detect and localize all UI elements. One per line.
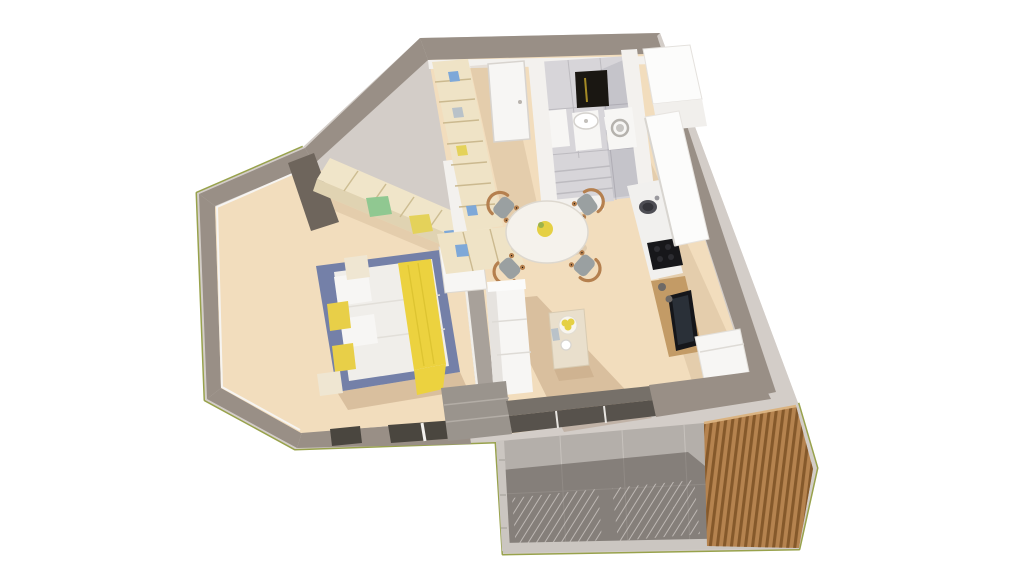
sink-basin [643, 203, 654, 211]
cup [561, 340, 571, 350]
fruit-leaf [538, 222, 544, 228]
screen-slats [704, 406, 813, 548]
faucet [655, 196, 660, 201]
bathroom-mirror [575, 70, 609, 108]
basin-drain [584, 119, 588, 123]
step-platform [441, 381, 512, 441]
entry-door [488, 61, 530, 142]
shelf-item-blue-2 [466, 205, 478, 216]
railing-shadow-hatch-1 [512, 489, 602, 549]
pillow-yellow-1 [327, 301, 351, 331]
washer-drum [616, 124, 624, 132]
apartment-3d-floorplan [0, 0, 1024, 576]
speaker-2 [666, 296, 673, 303]
wardrobe-item-tan-towel [409, 214, 433, 234]
shelf-item-blue [448, 71, 460, 82]
shelf-item-tan [456, 145, 468, 156]
nightstand-top [344, 255, 370, 280]
speaker-1 [658, 283, 666, 291]
wardrobe-item-green-towel [366, 196, 392, 217]
bedroom-window-small [330, 426, 362, 446]
door-handle [518, 100, 522, 104]
lower-shelf-item [455, 244, 469, 257]
shelf-item-gray [452, 107, 464, 118]
armchair [695, 329, 749, 380]
floorplan-render-canvas [0, 0, 1024, 576]
tall-cabinet [643, 45, 702, 104]
nightstand-bottom [317, 371, 343, 396]
railing-shadow-hatch-2 [612, 480, 700, 541]
pillow-yellow-2 [332, 343, 356, 372]
